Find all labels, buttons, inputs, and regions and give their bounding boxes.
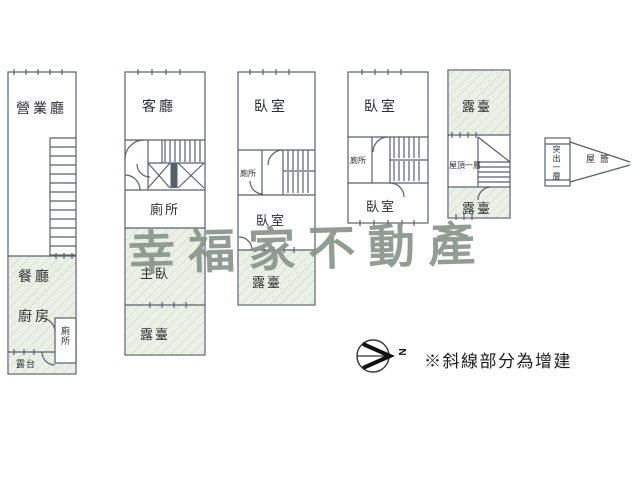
room-label-annex: 突出一層: [551, 145, 562, 181]
room-label-dining: 餐廳: [18, 266, 52, 286]
legend-note: ※斜線部分為增建: [424, 347, 572, 372]
room-label-terrace-roof-top: 露臺: [462, 96, 492, 115]
room-label-terrace-2f: 露臺: [140, 324, 170, 343]
floorplan-sheet: N 營業廳 餐廳 廚房 廁所 露台 客廳 廁所 主臥 露臺 臥室 廁所 臥室 露…: [0, 0, 640, 480]
room-label-terrace-1f: 露台: [16, 357, 36, 370]
north-arrow-icon: N: [357, 340, 407, 372]
room-label-roof-level: 屋頂一層: [449, 160, 481, 171]
room-label-kitchen: 廚房: [18, 306, 52, 326]
room-label-toilet-4f: 廁所: [350, 155, 366, 166]
room-label-bedroom-4f-top: 臥室: [364, 96, 398, 116]
north-label: N: [396, 348, 407, 355]
room-label-eave: 屋簷: [586, 152, 614, 165]
room-label-toilet-3f: 廁所: [240, 168, 256, 179]
room-label-hall: 營業廳: [16, 98, 67, 118]
room-label-living: 客廳: [142, 96, 176, 116]
agency-watermark: 幸福家不動產: [127, 205, 489, 284]
room-label-bedroom-3f-top: 臥室: [254, 96, 288, 116]
room-label-toilet-1f: 廁所: [59, 326, 72, 346]
